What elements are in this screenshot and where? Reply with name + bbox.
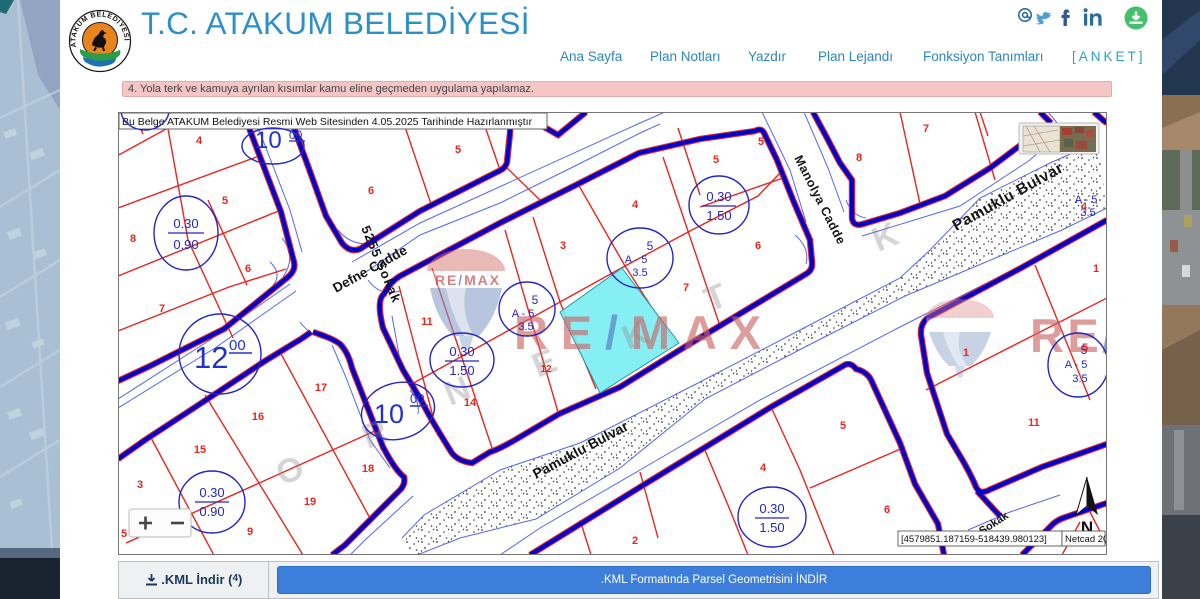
- svg-text:0.30: 0.30: [449, 344, 474, 359]
- svg-text:4: 4: [632, 199, 639, 211]
- svg-text:RE/MAX: RE/MAX: [1030, 309, 1106, 362]
- svg-text:Bu Belge ATAKUM Belediyesi Res: Bu Belge ATAKUM Belediyesi Resmi Web Sit…: [122, 116, 533, 128]
- svg-text:0.30: 0.30: [199, 485, 224, 500]
- svg-text:4: 4: [196, 135, 203, 147]
- svg-text:5: 5: [713, 154, 719, 166]
- svg-text:0.30: 0.30: [759, 501, 784, 516]
- svg-text:0.30: 0.30: [173, 216, 198, 231]
- svg-text:6: 6: [755, 240, 761, 252]
- svg-text:0.90: 0.90: [199, 504, 224, 519]
- svg-text:7: 7: [923, 123, 929, 135]
- svg-text:K: K: [867, 215, 904, 260]
- svg-text:6: 6: [884, 504, 890, 516]
- svg-text:2: 2: [632, 535, 638, 547]
- svg-text:17: 17: [315, 382, 327, 394]
- svg-text:O: O: [271, 448, 310, 493]
- svg-text:1.50: 1.50: [706, 208, 731, 223]
- svg-text:8: 8: [856, 152, 862, 164]
- svg-text:0.30: 0.30: [706, 189, 731, 204]
- svg-text:3: 3: [137, 479, 143, 491]
- svg-text:4: 4: [1081, 201, 1088, 213]
- svg-text:3: 3: [560, 240, 566, 252]
- svg-text:00: 00: [410, 391, 424, 406]
- svg-text:3.5: 3.5: [518, 321, 533, 333]
- svg-text:3.5: 3.5: [632, 267, 647, 279]
- svg-text:A - 5: A - 5: [625, 254, 648, 266]
- svg-text:[4579851.187159-518439.980123]: [4579851.187159-518439.980123]: [901, 534, 1047, 545]
- svg-text:5: 5: [455, 144, 461, 156]
- svg-text:4: 4: [760, 462, 767, 474]
- svg-text:Netcad 2025: Netcad 2025: [1065, 534, 1106, 545]
- svg-text:5: 5: [758, 136, 764, 148]
- svg-text:A - 5: A - 5: [512, 308, 535, 320]
- svg-text:5: 5: [840, 420, 846, 432]
- svg-text:6: 6: [368, 185, 374, 197]
- svg-text:19: 19: [304, 496, 316, 508]
- svg-text:6: 6: [245, 263, 251, 275]
- svg-text:5: 5: [647, 239, 654, 253]
- svg-text:00: 00: [289, 128, 303, 142]
- svg-text:12: 12: [540, 364, 552, 375]
- svg-text:7: 7: [683, 282, 689, 294]
- svg-text:A - 5: A - 5: [1065, 359, 1088, 371]
- svg-text:0.90: 0.90: [173, 237, 198, 252]
- svg-text:18: 18: [362, 463, 374, 475]
- svg-text:12: 12: [194, 340, 228, 375]
- svg-text:5: 5: [532, 293, 539, 307]
- svg-text:14: 14: [464, 397, 477, 409]
- svg-text:00: 00: [229, 337, 246, 354]
- svg-text:16: 16: [252, 411, 264, 423]
- svg-text:10: 10: [255, 127, 282, 154]
- svg-text:7: 7: [159, 303, 165, 315]
- svg-text:15: 15: [194, 444, 206, 456]
- svg-text:RE/MAX: RE/MAX: [435, 272, 500, 288]
- svg-text:3.5: 3.5: [1072, 373, 1087, 385]
- svg-text:10: 10: [374, 399, 404, 429]
- svg-text:9: 9: [247, 526, 253, 538]
- svg-text:1: 1: [1093, 263, 1099, 275]
- svg-text:1.50: 1.50: [449, 363, 474, 378]
- svg-text:11: 11: [1028, 417, 1040, 429]
- svg-text:11: 11: [421, 316, 433, 328]
- svg-text:5: 5: [222, 195, 228, 207]
- svg-text:5: 5: [1082, 342, 1088, 354]
- svg-text:8: 8: [130, 233, 136, 245]
- svg-text:1: 1: [963, 347, 969, 359]
- svg-text:1.50: 1.50: [759, 520, 784, 535]
- svg-text:5: 5: [121, 528, 127, 540]
